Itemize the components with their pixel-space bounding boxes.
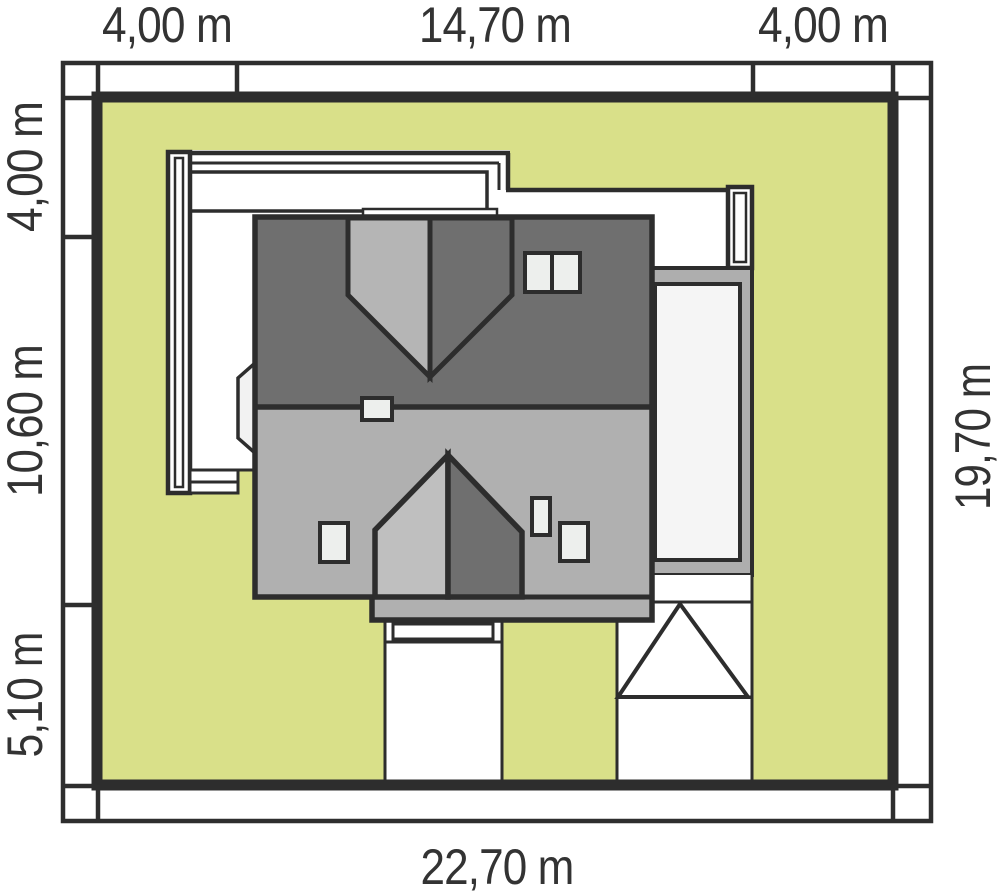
terrace-upper-slab (190, 172, 487, 211)
skylight-mid (532, 498, 550, 535)
skylight-right (560, 523, 588, 561)
dim-top-left: 4,00 m (102, 0, 232, 53)
site-plan-page: 4,00 m 14,70 m 4,00 m 4,00 m 10,60 m 5,1… (0, 0, 1000, 892)
skylight-left (320, 523, 348, 562)
dim-left-middle: 10,60 m (0, 345, 53, 497)
dim-top-right: 4,00 m (758, 0, 888, 53)
skylight-double (525, 253, 580, 292)
walkway-paving (385, 620, 502, 780)
house (238, 209, 652, 620)
chimney (362, 398, 392, 420)
dim-top-center: 14,70 m (419, 0, 571, 53)
walkway (385, 620, 502, 780)
dim-left-bottom: 5,10 m (0, 633, 53, 758)
dim-right: 19,70 m (945, 364, 1000, 510)
dim-left-top: 4,00 m (0, 102, 53, 232)
pergola-inner (655, 284, 740, 560)
entry-step (393, 624, 493, 639)
dim-bottom: 22,70 m (421, 839, 574, 892)
pergola (650, 268, 752, 575)
site-plan-drawing: 4,00 m 14,70 m 4,00 m 4,00 m 10,60 m 5,1… (0, 0, 1000, 892)
